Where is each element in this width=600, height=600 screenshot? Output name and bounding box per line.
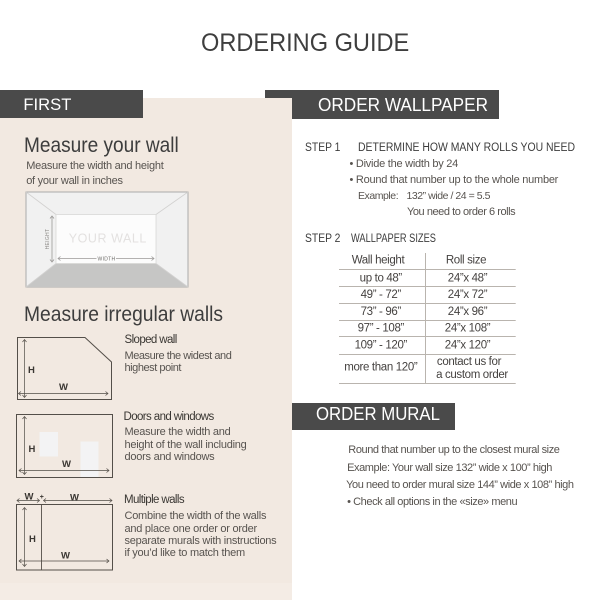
svg-text:Wall height: Wall height: [352, 254, 406, 266]
svg-text:73” - 96”: 73” - 96”: [361, 306, 402, 318]
svg-text:+: +: [40, 494, 44, 501]
svg-text:contact us for: contact us for: [437, 356, 502, 368]
svg-text:WIDTH: WIDTH: [98, 256, 116, 262]
svg-text:YOUR WALL: YOUR WALL: [69, 232, 147, 246]
svg-text:H: H: [29, 534, 36, 545]
svg-text:W: W: [70, 493, 79, 504]
svg-text:Roll size: Roll size: [446, 254, 486, 266]
svg-text:more than 120”: more than 120”: [344, 362, 418, 374]
svg-text:W: W: [61, 551, 70, 562]
svg-text:W: W: [59, 382, 68, 393]
svg-text:24”x 72”: 24”x 72”: [448, 289, 488, 301]
svg-text:a custom order: a custom order: [436, 369, 508, 381]
svg-text:109” - 120”: 109” - 120”: [355, 340, 408, 352]
svg-text:24”x 48”: 24”x 48”: [448, 272, 488, 284]
svg-text:H: H: [28, 365, 35, 376]
svg-text:HEIGHT: HEIGHT: [45, 229, 51, 250]
svg-text:24”x 96”: 24”x 96”: [448, 306, 488, 318]
svg-text:49” - 72”: 49” - 72”: [361, 289, 402, 301]
svg-text:W: W: [62, 459, 71, 470]
svg-text:W: W: [25, 492, 34, 503]
svg-text:H: H: [29, 444, 36, 455]
svg-text:up to 48”: up to 48”: [360, 272, 403, 284]
svg-text:97” - 108”: 97” - 108”: [358, 323, 405, 335]
svg-text:24”x 120”: 24”x 120”: [445, 340, 491, 352]
svg-text:24”x 108”: 24”x 108”: [445, 323, 491, 335]
